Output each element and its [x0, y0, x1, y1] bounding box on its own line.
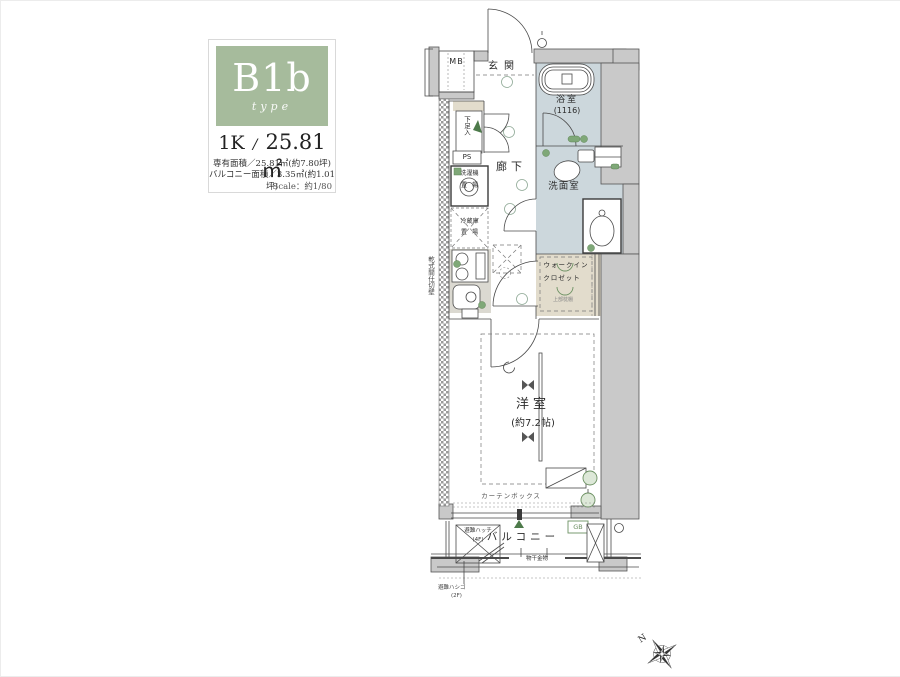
floorplan-drawing — [1, 1, 900, 676]
label-curtain-box: カーテンボックス — [461, 493, 561, 500]
label-dry-partition: 乾式間仕切壁 — [427, 256, 434, 326]
label-hatch-1: 避難ハッチ — [456, 529, 500, 535]
label-ladder-1: 避難ハシゴ — [438, 586, 466, 592]
fridge-area — [451, 208, 488, 248]
label-bathroom-size: (1116) — [536, 107, 598, 115]
dry-partition-wall — [439, 99, 449, 506]
entry-direction-marker — [514, 520, 524, 528]
label-gb: GB — [568, 524, 588, 531]
label-washroom: 洗面室 — [537, 182, 591, 192]
bathroom-fittings — [568, 136, 588, 143]
label-drying-fixture: 物干金物 — [509, 557, 565, 563]
label-shoe-closet: 下足入 — [463, 116, 470, 150]
washbasin — [583, 199, 621, 253]
label-ladder-2: (2F) — [451, 594, 462, 600]
label-wic-2: クロゼット — [534, 275, 590, 282]
label-fridge-2: 置場 — [451, 230, 488, 236]
entrance-door-arc — [488, 9, 547, 53]
balcony-partition — [587, 524, 624, 563]
label-wic-1: ウォークイン — [536, 262, 596, 269]
floorplan-page: B1b type 1K / 25.81㎡ 専有面積／25.81㎡(約7.80坪)… — [0, 0, 900, 677]
bedroom-counter — [546, 468, 597, 507]
label-bedroom: 洋室 — [501, 398, 561, 411]
label-pipe-space: PS — [453, 154, 481, 161]
ceiling-downlights — [502, 77, 528, 305]
bathtub — [539, 64, 594, 95]
label-corridor: 廊下 — [481, 161, 541, 172]
label-bathroom: 浴室 — [536, 96, 598, 105]
label-genkan: 玄関 — [474, 62, 534, 72]
label-bedroom-size: (約7.2帖) — [498, 419, 568, 429]
bedroom-door-arc — [491, 319, 539, 367]
label-hatch-2: (4F) — [456, 538, 500, 544]
label-fridge-1: 冷蔵庫 — [451, 219, 488, 225]
label-wic-shelf-note: 上部枕棚 — [541, 298, 585, 303]
label-meter-box: MB — [439, 58, 474, 66]
label-washer-1: 洗濯機 — [451, 171, 488, 177]
label-washer-2: 置場 — [451, 183, 488, 189]
